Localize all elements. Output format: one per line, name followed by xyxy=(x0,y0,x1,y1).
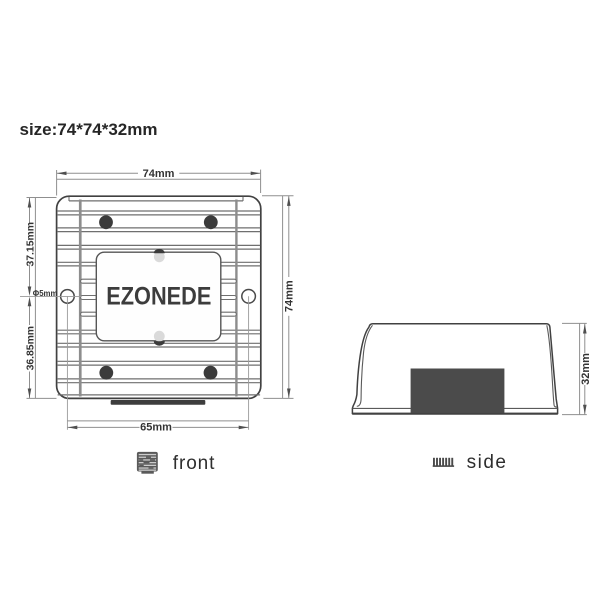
svg-text:37.15mm: 37.15mm xyxy=(26,222,37,266)
svg-text:36.85mm: 36.85mm xyxy=(26,326,37,370)
svg-text:front: front xyxy=(173,453,216,474)
svg-text:side: side xyxy=(467,452,508,473)
svg-text:74mm: 74mm xyxy=(284,280,296,312)
svg-text:65mm: 65mm xyxy=(140,421,172,433)
svg-text:74mm: 74mm xyxy=(143,168,175,180)
svg-text:EZONEDE: EZONEDE xyxy=(106,282,211,310)
svg-text:size:74*74*32mm: size:74*74*32mm xyxy=(20,120,158,139)
svg-text:32mm: 32mm xyxy=(580,353,592,385)
svg-text:Φ5mm: Φ5mm xyxy=(33,289,58,298)
